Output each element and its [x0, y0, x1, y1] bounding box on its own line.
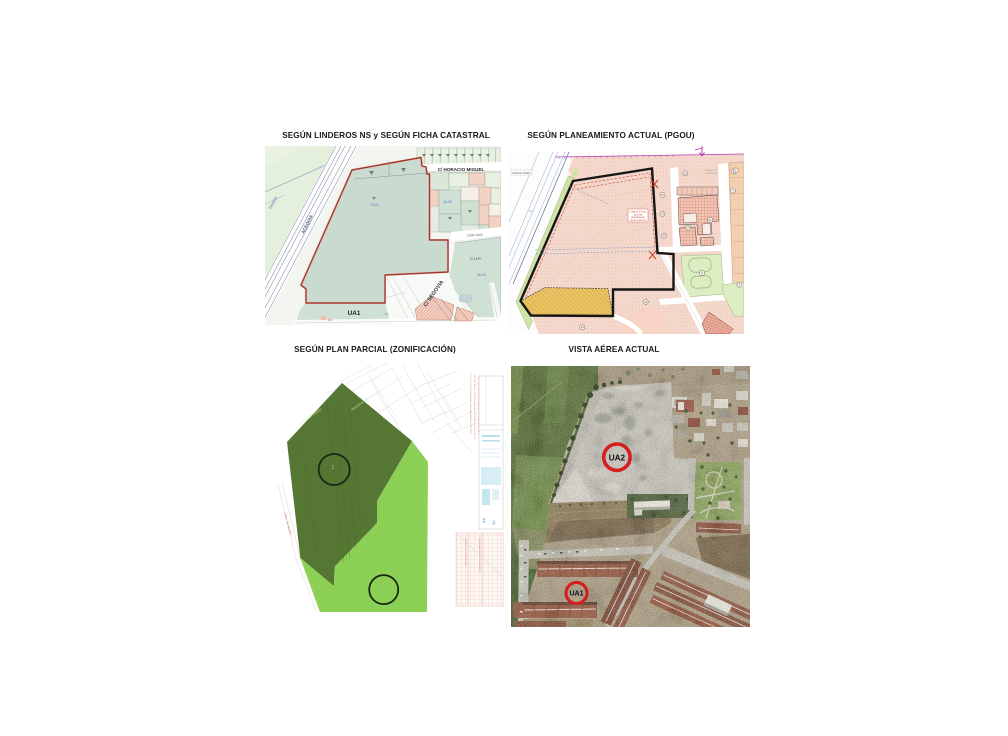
- svg-text:P P: P P: [331, 465, 335, 469]
- svg-text:C.P. A-12 SOL DE MEDINA ALTURA: C.P. A-12 SOL DE MEDINA ALTURA SANEAMIEN…: [469, 373, 472, 434]
- svg-text:C.U.P.: C.U.P.: [470, 256, 481, 261]
- svg-text:AU: AU: [482, 517, 486, 523]
- svg-text:15-81: 15-81: [370, 203, 379, 207]
- svg-text:EQUIPAMIENTO: EQUIPAMIENTO: [705, 172, 719, 175]
- svg-text:DE RED DE A.P. PUNTOS SANEAMIE: DE RED DE A.P. PUNTOS SANEAMIENTO DE PUN…: [473, 375, 476, 440]
- svg-text:ALTURA: ALTURA: [634, 213, 643, 216]
- svg-text:16-04: 16-04: [443, 200, 452, 204]
- svg-text:16: 16: [385, 312, 389, 316]
- svg-text:ZONA Nº 10º SOL: ZONA Nº 10º SOL: [630, 211, 648, 214]
- svg-text:3U: 3U: [492, 520, 496, 525]
- svg-text:NNE DE SORIA: NNE DE SORIA: [512, 171, 531, 175]
- svg-text:RESIDENCIAL: RESIDENCIAL: [631, 216, 646, 219]
- svg-text:UA2: UA2: [609, 453, 626, 462]
- svg-text:UA1: UA1: [348, 310, 361, 317]
- svg-text:C/ HORACIO MIGUEL: C/ HORACIO MIGUEL: [438, 167, 485, 172]
- svg-text:16-23: 16-23: [477, 273, 486, 277]
- svg-text:S.G.S.C. 13: S.G.S.C. 13: [705, 170, 717, 172]
- svg-text:CUADRO DE SUPERFICIES: CUADRO DE SUPERFICIES: [464, 538, 467, 567]
- svg-text:UN. ACTUACION: UN. ACTUACION: [630, 219, 647, 222]
- svg-text:UA1: UA1: [569, 591, 583, 598]
